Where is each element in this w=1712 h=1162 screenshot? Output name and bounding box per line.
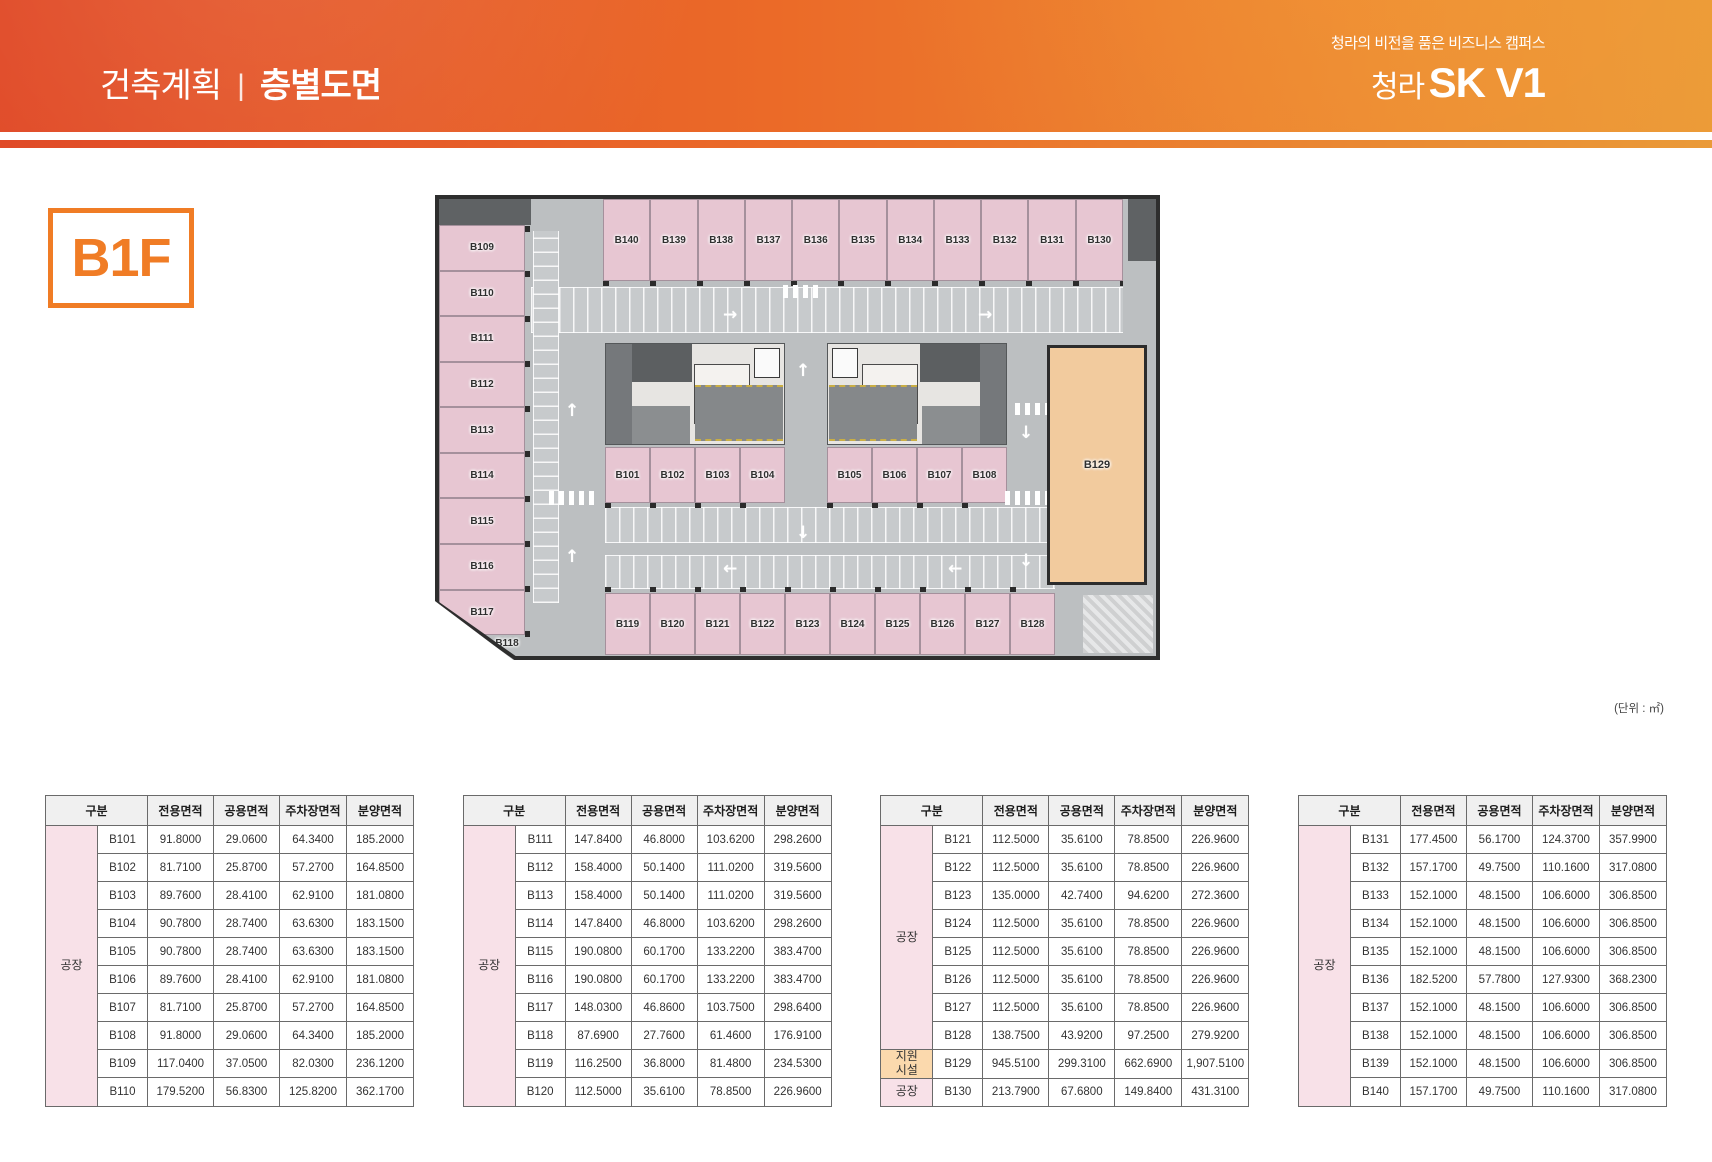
unit-id-cell: B134 — [1350, 910, 1400, 938]
floor-plan: B109B110B111B112B113B114B115B116B117 B14… — [435, 195, 1160, 660]
table-row-b111: 공장B111147.840046.8000103.6200298.2600 — [463, 826, 831, 854]
area-value-cell: 78.8500 — [1115, 826, 1182, 854]
unit-label: B129 — [1084, 459, 1110, 471]
col-header: 전용면적 — [983, 796, 1049, 826]
unit-id-cell: B127 — [933, 994, 983, 1022]
brand-tagline: 청라의 비전을 품은 비즈니스 캠퍼스 — [1331, 32, 1545, 53]
area-value-cell: 56.8300 — [214, 1078, 280, 1106]
area-value-cell: 78.8500 — [697, 1078, 764, 1106]
area-value-cell: 87.6900 — [565, 1022, 631, 1050]
unit-id-cell: B137 — [1350, 994, 1400, 1022]
table-row-b140: B140157.170049.7500110.1600317.0800 — [1298, 1078, 1666, 1106]
area-value-cell: 116.2500 — [565, 1050, 631, 1078]
unit-label: B128 — [1021, 619, 1045, 630]
plan-unit-b123: B123 — [785, 593, 830, 655]
plan-unit-b130: B130 — [1076, 199, 1123, 281]
unit-label: B113 — [470, 425, 493, 436]
unit-id-cell: B110 — [98, 1078, 148, 1106]
page-header: 건축계획|층별도면 청라의 비전을 품은 비즈니스 캠퍼스 청라 SK V1 — [0, 0, 1712, 132]
area-value-cell: 226.9600 — [1182, 938, 1249, 966]
area-value-cell: 42.7400 — [1049, 882, 1115, 910]
brand-block: 청라의 비전을 품은 비즈니스 캠퍼스 청라 SK V1 — [1331, 32, 1545, 107]
stair-block — [606, 344, 632, 444]
table-row-b137: B137152.100048.1500106.6000306.8500 — [1298, 994, 1666, 1022]
area-value-cell: 183.1500 — [347, 910, 414, 938]
area-value-cell: 152.1000 — [1400, 938, 1466, 966]
area-value-cell: 64.3400 — [280, 1022, 347, 1050]
unit-label: B123 — [796, 619, 820, 630]
col-header: 공용면적 — [631, 796, 697, 826]
area-value-cell: 152.1000 — [1400, 910, 1466, 938]
plan-unit-b138: B138 — [698, 199, 745, 281]
area-value-cell: 176.9100 — [764, 1022, 831, 1050]
unit-label: B133 — [946, 235, 970, 246]
unit-id-cell: B139 — [1350, 1050, 1400, 1078]
area-value-cell: 157.1700 — [1400, 1078, 1466, 1106]
area-value-cell: 89.7600 — [148, 966, 214, 994]
area-value-cell: 50.1400 — [631, 882, 697, 910]
area-value-cell: 236.1200 — [347, 1050, 414, 1078]
unit-id-cell: B122 — [933, 854, 983, 882]
traffic-arrow-icon: ← — [723, 559, 737, 579]
area-value-cell: 103.7500 — [697, 994, 764, 1022]
area-value-cell: 48.1500 — [1466, 1050, 1532, 1078]
plan-unit-b119: B119 — [605, 593, 650, 655]
category-cell: 공장 — [46, 826, 98, 1107]
table-row-b131: 공장B131177.450056.1700124.3700357.9900 — [1298, 826, 1666, 854]
unit-label: B132 — [993, 235, 1017, 246]
table-row-b126: B126112.500035.610078.8500226.9600 — [881, 966, 1249, 994]
plan-mid-left-units: B101B102B103B104 — [605, 447, 785, 503]
area-value-cell: 57.7800 — [1466, 966, 1532, 994]
table-row-b135: B135152.100048.1500106.6000306.8500 — [1298, 938, 1666, 966]
table-row-b134: B134152.100048.1500106.6000306.8500 — [1298, 910, 1666, 938]
col-header: 공용면적 — [214, 796, 280, 826]
area-value-cell: 157.1700 — [1400, 854, 1466, 882]
area-value-cell: 29.0600 — [214, 826, 280, 854]
unit-id-cell: B128 — [933, 1022, 983, 1050]
unit-label: B110 — [470, 288, 493, 299]
title-page: 층별도면 — [260, 67, 381, 105]
unit-label: B125 — [886, 619, 910, 630]
unit-id-cell: B113 — [515, 882, 565, 910]
col-header: 구분 — [881, 796, 983, 826]
unit-label: B124 — [841, 619, 865, 630]
area-value-cell: 182.5200 — [1400, 966, 1466, 994]
col-header: 주차장면적 — [280, 796, 347, 826]
area-value-cell: 183.1500 — [347, 938, 414, 966]
structure-block — [1128, 199, 1156, 261]
area-value-cell: 78.8500 — [1115, 966, 1182, 994]
area-value-cell: 147.8400 — [565, 826, 631, 854]
unit-label: B136 — [804, 235, 828, 246]
unit-label: B120 — [661, 619, 685, 630]
header-swoosh-decoration — [862, 0, 1712, 132]
col-header: 공용면적 — [1049, 796, 1115, 826]
plan-unit-b139: B139 — [650, 199, 697, 281]
unit-label: B119 — [616, 619, 639, 630]
traffic-arrow-icon: ← — [948, 559, 962, 579]
unit-label: B108 — [973, 470, 997, 481]
area-value-cell: 28.4100 — [214, 966, 280, 994]
area-value-cell: 152.1000 — [1400, 882, 1466, 910]
table-row-b129: 지원 시설B129945.5100299.3100662.69001,907.5… — [881, 1050, 1249, 1079]
area-value-cell: 226.9600 — [1182, 994, 1249, 1022]
plan-unit-b126: B126 — [920, 593, 965, 655]
plan-unit-b120: B120 — [650, 593, 695, 655]
traffic-arrow-icon: ↑ — [565, 547, 579, 567]
unit-label: B105 — [838, 470, 862, 481]
area-value-cell: 112.5000 — [983, 938, 1049, 966]
unit-label: B138 — [709, 235, 733, 246]
area-value-cell: 28.7400 — [214, 938, 280, 966]
area-value-cell: 226.9600 — [1182, 910, 1249, 938]
traffic-arrow-icon: ↑ — [565, 401, 579, 421]
plan-unit-b135: B135 — [839, 199, 886, 281]
table-header-row: 구분전용면적공용면적주차장면적분양면적 — [46, 796, 414, 826]
unit-label: B118 — [495, 638, 518, 649]
area-value-cell: 103.6200 — [697, 910, 764, 938]
floor-badge: B1F — [48, 208, 194, 308]
parking-stalls — [605, 555, 1055, 589]
area-value-cell: 35.6100 — [631, 1078, 697, 1106]
plan-unit-b107: B107 — [917, 447, 962, 503]
area-value-cell: 62.9100 — [280, 966, 347, 994]
area-value-cell: 78.8500 — [1115, 938, 1182, 966]
unit-id-cell: B108 — [98, 1022, 148, 1050]
unit-label: B107 — [928, 470, 952, 481]
plan-unit-b106: B106 — [872, 447, 917, 503]
area-value-cell: 46.8600 — [631, 994, 697, 1022]
col-header: 분양면적 — [764, 796, 831, 826]
area-value-cell: 28.4100 — [214, 882, 280, 910]
area-value-cell: 90.7800 — [148, 938, 214, 966]
col-header: 구분 — [46, 796, 148, 826]
col-header: 주차장면적 — [1115, 796, 1182, 826]
table-row-b136: B136182.520057.7800127.9300368.2300 — [1298, 966, 1666, 994]
unit-id-cell: B115 — [515, 938, 565, 966]
unit-id-cell: B123 — [933, 882, 983, 910]
area-value-cell: 49.7500 — [1466, 1078, 1532, 1106]
area-value-cell: 147.8400 — [565, 910, 631, 938]
area-value-cell: 89.7600 — [148, 882, 214, 910]
plan-unit-b102: B102 — [650, 447, 695, 503]
unit-label: B137 — [756, 235, 780, 246]
unit-label: B139 — [662, 235, 686, 246]
unit-id-cell: B116 — [515, 966, 565, 994]
unit-label: B126 — [931, 619, 955, 630]
traffic-arrow-icon: ↓ — [1019, 423, 1033, 443]
area-value-cell: 103.6200 — [697, 826, 764, 854]
unit-id-cell: B119 — [515, 1050, 565, 1078]
unit-id-cell: B107 — [98, 994, 148, 1022]
unit-id-cell: B130 — [933, 1078, 983, 1106]
area-table-4: 구분전용면적공용면적주차장면적분양면적공장B131177.450056.1700… — [1298, 795, 1667, 1107]
category-cell: 공장 — [1298, 826, 1350, 1107]
unit-id-cell: B103 — [98, 882, 148, 910]
structure-block — [439, 199, 531, 225]
area-value-cell: 60.1700 — [631, 938, 697, 966]
category-cell: 공장 — [881, 826, 933, 1050]
area-value-cell: 662.6900 — [1115, 1050, 1182, 1079]
unit-id-cell: B118 — [515, 1022, 565, 1050]
area-value-cell: 37.0500 — [214, 1050, 280, 1078]
area-value-cell: 317.0800 — [1599, 854, 1666, 882]
area-value-cell: 48.1500 — [1466, 882, 1532, 910]
plan-unit-b101: B101 — [605, 447, 650, 503]
unit-label: B109 — [470, 242, 494, 253]
table-row-b117: B117148.030046.8600103.7500298.6400 — [463, 994, 831, 1022]
plan-unit-b115: B115 — [439, 498, 525, 544]
parking-stalls — [533, 231, 559, 603]
area-value-cell: 306.8500 — [1599, 882, 1666, 910]
area-value-cell: 306.8500 — [1599, 910, 1666, 938]
area-value-cell: 368.2300 — [1599, 966, 1666, 994]
area-value-cell: 112.5000 — [983, 910, 1049, 938]
plan-unit-b114: B114 — [439, 453, 525, 499]
area-value-cell: 148.0300 — [565, 994, 631, 1022]
area-value-cell: 112.5000 — [983, 854, 1049, 882]
vehicle-ramp — [829, 385, 917, 441]
area-value-cell: 27.7600 — [631, 1022, 697, 1050]
area-value-cell: 306.8500 — [1599, 994, 1666, 1022]
area-value-cell: 133.2200 — [697, 966, 764, 994]
area-value-cell: 61.4600 — [697, 1022, 764, 1050]
unit-label: B130 — [1087, 235, 1111, 246]
unit-id-cell: B124 — [933, 910, 983, 938]
table-row-b132: B132157.170049.7500110.1600317.0800 — [1298, 854, 1666, 882]
area-value-cell: 35.6100 — [1049, 826, 1115, 854]
table-row-b106: B10689.760028.410062.9100181.0800 — [46, 966, 414, 994]
area-value-cell: 357.9900 — [1599, 826, 1666, 854]
plan-unit-b131: B131 — [1028, 199, 1075, 281]
area-table-3: 구분전용면적공용면적주차장면적분양면적공장B121112.500035.6100… — [880, 795, 1249, 1107]
table-row-b120: B120112.500035.610078.8500226.9600 — [463, 1078, 831, 1106]
unit-label: B121 — [706, 619, 730, 630]
area-value-cell: 149.8400 — [1115, 1078, 1182, 1106]
brand-name: SK V1 — [1429, 59, 1545, 106]
title-section: 건축계획 — [100, 67, 221, 105]
plan-unit-b108: B108 — [962, 447, 1007, 503]
table-row-b107: B10781.710025.870057.2700164.8500 — [46, 994, 414, 1022]
unit-id-cell: B126 — [933, 966, 983, 994]
area-table-2: 구분전용면적공용면적주차장면적분양면적공장B111147.840046.8000… — [463, 795, 832, 1107]
table-row-b128: B128138.750043.920097.2500279.9200 — [881, 1022, 1249, 1050]
area-value-cell: 319.5600 — [764, 882, 831, 910]
column-row — [525, 225, 530, 637]
area-value-cell: 46.8000 — [631, 826, 697, 854]
area-value-cell: 317.0800 — [1599, 1078, 1666, 1106]
area-value-cell: 383.4700 — [764, 966, 831, 994]
area-table-1: 구분전용면적공용면적주차장면적분양면적공장B10191.800029.06006… — [45, 795, 414, 1107]
unit-label: B101 — [616, 470, 640, 481]
loading-dock — [1083, 595, 1153, 653]
table-row-b116: B116190.080060.1700133.2200383.4700 — [463, 966, 831, 994]
area-value-cell: 49.7500 — [1466, 854, 1532, 882]
table-row-b112: B112158.400050.1400111.0200319.5600 — [463, 854, 831, 882]
unit-id-cell: B111 — [515, 826, 565, 854]
area-value-cell: 158.4000 — [565, 854, 631, 882]
traffic-arrow-icon: → — [978, 305, 992, 325]
table-row-b139: B139152.100048.1500106.6000306.8500 — [1298, 1050, 1666, 1078]
plan-unit-b125: B125 — [875, 593, 920, 655]
unit-id-cell: B109 — [98, 1050, 148, 1078]
table-row-b109: B109117.040037.050082.0300236.1200 — [46, 1050, 414, 1078]
plan-left-units: B109B110B111B112B113B114B115B116B117 — [439, 225, 525, 635]
area-value-cell: 106.6000 — [1532, 994, 1599, 1022]
area-value-cell: 152.1000 — [1400, 1050, 1466, 1078]
area-value-cell: 133.2200 — [697, 938, 764, 966]
area-value-cell: 1,907.5100 — [1182, 1050, 1249, 1079]
unit-label: B127 — [976, 619, 1000, 630]
unit-label: B114 — [470, 470, 493, 481]
brand-logo: 청라 SK V1 — [1331, 59, 1545, 107]
area-value-cell: 78.8500 — [1115, 994, 1182, 1022]
plan-unit-b104: B104 — [740, 447, 785, 503]
unit-label: B134 — [898, 235, 922, 246]
col-header: 주차장면적 — [1532, 796, 1599, 826]
area-value-cell: 152.1000 — [1400, 1022, 1466, 1050]
area-value-cell: 91.8000 — [148, 826, 214, 854]
area-value-cell: 226.9600 — [1182, 854, 1249, 882]
plan-unit-b132: B132 — [981, 199, 1028, 281]
traffic-arrow-icon: ↑ — [796, 361, 810, 381]
parking-stalls — [605, 507, 1055, 543]
area-value-cell: 63.6300 — [280, 938, 347, 966]
column-row — [603, 281, 1123, 286]
unit-note: (단위 : ㎡) — [1614, 700, 1664, 716]
area-value-cell: 57.2700 — [280, 854, 347, 882]
area-value-cell: 226.9600 — [1182, 826, 1249, 854]
unit-id-cell: B102 — [98, 854, 148, 882]
plan-unit-b137: B137 — [745, 199, 792, 281]
table-row-b121: 공장B121112.500035.610078.8500226.9600 — [881, 826, 1249, 854]
area-value-cell: 35.6100 — [1049, 966, 1115, 994]
traffic-arrow-icon: ↓ — [796, 523, 810, 543]
plan-unit-b133: B133 — [934, 199, 981, 281]
area-value-cell: 106.6000 — [1532, 1050, 1599, 1078]
area-value-cell: 112.5000 — [983, 826, 1049, 854]
area-value-cell: 112.5000 — [565, 1078, 631, 1106]
table-row-b101: 공장B10191.800029.060064.3400185.2000 — [46, 826, 414, 854]
area-value-cell: 306.8500 — [1599, 938, 1666, 966]
area-value-cell: 383.4700 — [764, 938, 831, 966]
area-value-cell: 158.4000 — [565, 882, 631, 910]
area-value-cell: 152.1000 — [1400, 994, 1466, 1022]
col-header: 분양면적 — [1182, 796, 1249, 826]
column-row — [605, 503, 785, 508]
col-header: 구분 — [463, 796, 565, 826]
vehicle-ramp — [695, 385, 783, 441]
area-value-cell: 90.7800 — [148, 910, 214, 938]
table-row-b108: B10891.800029.060064.3400185.2000 — [46, 1022, 414, 1050]
area-value-cell: 48.1500 — [1466, 910, 1532, 938]
unit-id-cell: B133 — [1350, 882, 1400, 910]
plan-unit-b140: B140 — [603, 199, 650, 281]
area-value-cell: 91.8000 — [148, 1022, 214, 1050]
area-value-cell: 431.3100 — [1182, 1078, 1249, 1106]
elevator-cab — [832, 348, 858, 378]
unit-label: B102 — [661, 470, 685, 481]
area-value-cell: 78.8500 — [1115, 854, 1182, 882]
unit-label: B140 — [615, 235, 639, 246]
column-row — [827, 503, 1007, 508]
column-row — [605, 587, 1055, 592]
area-value-cell: 110.1600 — [1532, 1078, 1599, 1106]
area-value-cell: 185.2000 — [347, 826, 414, 854]
unit-label: B111 — [471, 333, 494, 344]
unit-id-cell: B112 — [515, 854, 565, 882]
title-divider: | — [237, 69, 244, 102]
area-value-cell: 48.1500 — [1466, 1022, 1532, 1050]
unit-label: B116 — [470, 561, 493, 572]
plan-unit-b136: B136 — [792, 199, 839, 281]
area-value-cell: 28.7400 — [214, 910, 280, 938]
area-value-cell: 164.8500 — [347, 994, 414, 1022]
plan-top-units: B140B139B138B137B136B135B134B133B132B131… — [603, 199, 1123, 281]
area-value-cell: 190.0800 — [565, 966, 631, 994]
area-value-cell: 35.6100 — [1049, 994, 1115, 1022]
unit-label: B117 — [470, 607, 493, 618]
area-value-cell: 213.7900 — [983, 1078, 1049, 1106]
unit-id-cell: B104 — [98, 910, 148, 938]
table-row-b124: B124112.500035.610078.8500226.9600 — [881, 910, 1249, 938]
area-value-cell: 362.1700 — [347, 1078, 414, 1106]
table-header-row: 구분전용면적공용면적주차장면적분양면적 — [1298, 796, 1666, 826]
crosswalk — [1015, 403, 1047, 415]
plan-bottom-units: B119B120B121B122B123B124B125B126B127B128 — [605, 593, 1055, 655]
area-value-cell: 190.0800 — [565, 938, 631, 966]
plan-unit-b124: B124 — [830, 593, 875, 655]
parking-stalls — [531, 287, 1123, 333]
area-value-cell: 117.0400 — [148, 1050, 214, 1078]
col-header: 전용면적 — [148, 796, 214, 826]
area-value-cell: 106.6000 — [1532, 1022, 1599, 1050]
machine-room — [632, 406, 690, 444]
unit-id-cell: B135 — [1350, 938, 1400, 966]
area-value-cell: 319.5600 — [764, 854, 831, 882]
plan-unit-b127: B127 — [965, 593, 1010, 655]
area-value-cell: 50.1400 — [631, 854, 697, 882]
header-underline-strip — [0, 140, 1712, 148]
table-row-b125: B125112.500035.610078.8500226.9600 — [881, 938, 1249, 966]
col-header: 구분 — [1298, 796, 1400, 826]
area-value-cell: 60.1700 — [631, 966, 697, 994]
col-header: 전용면적 — [565, 796, 631, 826]
area-value-cell: 46.8000 — [631, 910, 697, 938]
area-value-cell: 78.8500 — [1115, 910, 1182, 938]
plan-unit-b110: B110 — [439, 271, 525, 317]
unit-label: B104 — [751, 470, 775, 481]
area-value-cell: 306.8500 — [1599, 1050, 1666, 1078]
area-value-cell: 106.6000 — [1532, 910, 1599, 938]
area-value-cell: 67.6800 — [1049, 1078, 1115, 1106]
plan-unit-b134: B134 — [887, 199, 934, 281]
area-value-cell: 81.7100 — [148, 854, 214, 882]
machine-room — [922, 406, 980, 444]
table-row-b104: B10490.780028.740063.6300183.1500 — [46, 910, 414, 938]
area-value-cell: 279.9200 — [1182, 1022, 1249, 1050]
area-value-cell: 234.5300 — [764, 1050, 831, 1078]
area-value-cell: 299.3100 — [1049, 1050, 1115, 1079]
unit-id-cell: B114 — [515, 910, 565, 938]
plan-unit-b111: B111 — [439, 316, 525, 362]
area-value-cell: 64.3400 — [280, 826, 347, 854]
area-value-cell: 106.6000 — [1532, 882, 1599, 910]
area-value-cell: 177.4500 — [1400, 826, 1466, 854]
unit-id-cell: B131 — [1350, 826, 1400, 854]
category-cell: 공장 — [463, 826, 515, 1107]
